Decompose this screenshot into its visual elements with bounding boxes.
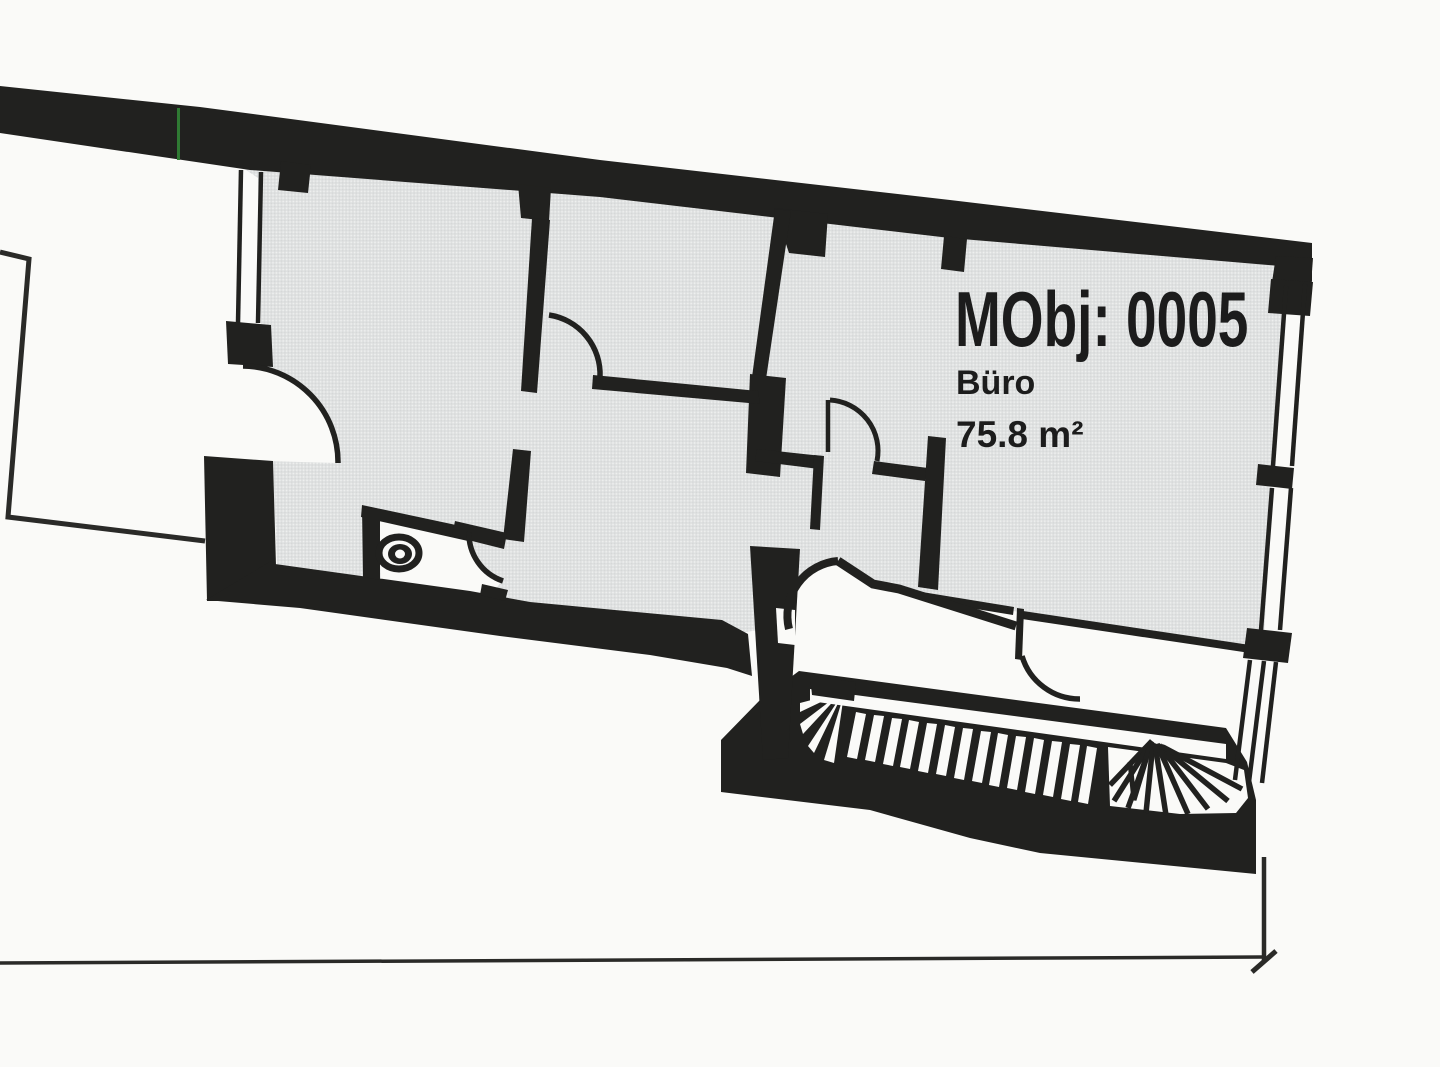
svg-text:Büro: Büro — [956, 364, 1035, 402]
svg-text:MObj: 0005: MObj: 0005 — [955, 277, 1248, 364]
svg-text:75.8 m²: 75.8 m² — [956, 414, 1084, 455]
